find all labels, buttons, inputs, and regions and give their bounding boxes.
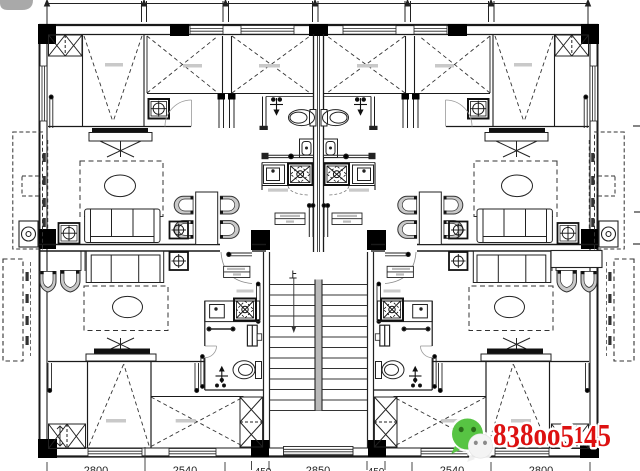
- svg-text:2540: 2540: [173, 465, 197, 471]
- svg-text:2540: 2540: [440, 465, 464, 471]
- svg-text:2800: 2800: [529, 465, 553, 471]
- svg-text:2800: 2800: [84, 465, 108, 471]
- svg-text:838oo5145: 838oo5145: [493, 416, 611, 454]
- svg-text:450: 450: [368, 467, 385, 471]
- svg-text:2850: 2850: [306, 465, 330, 471]
